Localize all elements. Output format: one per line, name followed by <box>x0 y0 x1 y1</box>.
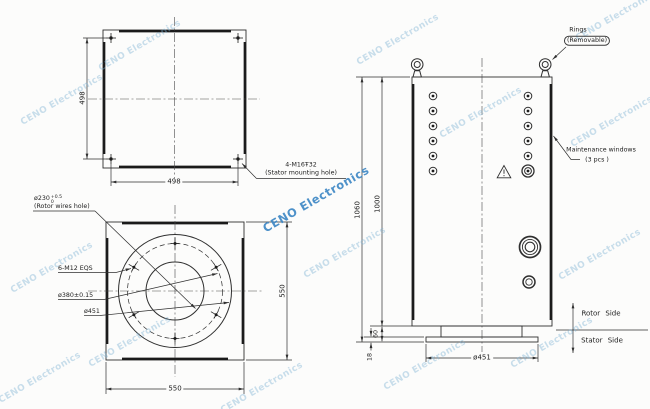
rotor-wires-hole-dia-value: ø230 <box>34 195 50 202</box>
warning-triangle-icon <box>497 166 511 178</box>
rotor-face-view-linework <box>33 205 292 394</box>
callout-maintenance-windows: Maintenance windows <box>566 148 636 155</box>
engineering-drawing: CENO Electronics CENO Electronics CENO E… <box>0 0 650 409</box>
dim-label-base-height: 60 <box>373 330 380 338</box>
lifting-rings <box>411 59 551 77</box>
dim-label-rotor-width: 550 <box>166 385 183 392</box>
callout-bolt-circle-dia: ø380±0.15 <box>58 293 93 300</box>
dim-label-stator-height: 498 <box>79 91 86 104</box>
dim-label-stator-width: 498 <box>165 178 182 185</box>
stator-top-view-linework <box>83 17 346 186</box>
callout-stator-mounting-hole-spec: 4-M16Ŧ32 <box>285 163 317 170</box>
callout-maintenance-windows-qty: (3 pcs ) <box>585 157 609 164</box>
label-stator-side: Stator Side <box>581 337 623 344</box>
callout-rotor-wires-hole-name: (Rotor wires hole) <box>34 204 90 211</box>
dim-label-rotor-height: 550 <box>279 284 286 297</box>
dim-label-flange-dia: ø451 <box>471 354 493 361</box>
dim-label-body-height: 1000 <box>374 195 381 213</box>
label-rotor-side: Rotor Side <box>581 310 620 317</box>
callout-rotor-outer-dia: ø451 <box>84 309 100 316</box>
callout-stator-mounting-hole-name: (Stator mounting hole) <box>265 171 337 178</box>
callout-rings: Rings <box>569 28 586 35</box>
dim-label-flange-thickness: 18 <box>368 353 375 361</box>
circular-connectors <box>520 237 541 289</box>
callout-bolt-pattern: 6-M12 EQS <box>58 266 93 273</box>
callout-rings-removable: (Removable) <box>564 38 610 45</box>
dim-label-overall-height: 1060 <box>354 201 361 219</box>
